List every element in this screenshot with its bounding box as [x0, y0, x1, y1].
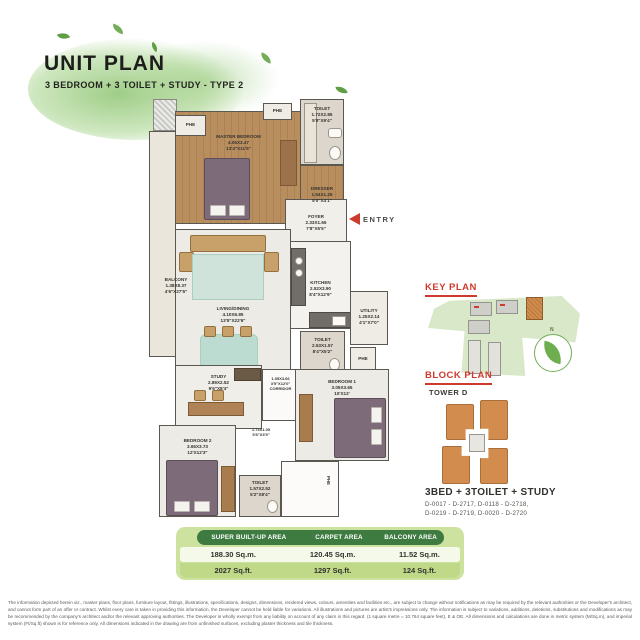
room-study: STUDY 2.89X2.52 9'6"X8'4": [175, 365, 262, 429]
stove-icon: [295, 269, 303, 277]
floor-plan: BALCONY 1.38X8.37 4'6"X27'5" MASTER BEDR…: [145, 95, 390, 520]
dining-chair-icon: [222, 326, 234, 337]
room-label-passage: 1.73X1.05 5'8"X3'5": [237, 427, 285, 437]
room-label-corridor: 1.05X3.66 3'5"X12'0" CORRIDOR: [263, 376, 298, 392]
room-label-study: STUDY 2.89X2.52 9'6"X8'4": [176, 374, 261, 392]
key-plan-tower: [468, 340, 481, 374]
service-shaft: [153, 99, 177, 131]
room-label-toilet2: TOILET 1.57X2.52 5'2"X8'4": [240, 480, 280, 498]
room-label-bedroom2: BEDROOM 2 3.65X3.73 12'X12'3": [160, 438, 235, 456]
area-row-sqft: 2027 Sq.ft. 1297 Sq.ft. 124 Sq.ft.: [180, 563, 460, 578]
leaf-icon: [335, 85, 347, 95]
room-bedroom2: BEDROOM 2 3.65X3.73 12'X12'3": [159, 425, 236, 517]
wardrobe-icon: [299, 394, 313, 442]
bed-icon: [204, 158, 250, 220]
page-subtitle: 3 BEDROOM + 3 TOILET + STUDY - TYPE 2: [45, 80, 244, 90]
sink-icon: [332, 316, 346, 326]
bed-icon: [166, 460, 218, 516]
exit-lobby: PHE: [281, 461, 339, 517]
value-super-builtup-sqm: 188.30 Sq.m.: [180, 550, 286, 559]
header-balcony: BALCONY AREA: [377, 534, 444, 541]
header-super-builtup: SUPER BUILT-UP AREA: [197, 534, 301, 541]
room-corridor: 1.05X3.66 3'5"X12'0" CORRIDOR: [262, 369, 299, 421]
room-toilet2: TOILET 1.57X2.52 5'2"X8'4": [239, 475, 281, 517]
washbasin-icon: [328, 128, 342, 138]
unit-plan-page: UNIT PLAN 3 BEDROOM + 3 TOILET + STUDY -…: [0, 0, 640, 640]
room-label-balcony: BALCONY 1.38X8.37 4'6"X27'5": [147, 277, 205, 295]
key-plan-title: KEY PLAN: [425, 282, 477, 297]
block-unit: [480, 448, 508, 484]
value-carpet-sqft: 1297 Sq.ft.: [286, 566, 378, 575]
room-balcony: [149, 131, 176, 357]
key-plan-tower: [468, 320, 490, 334]
unit-numbers-line1: D-0017 - D-2717, D-0118 - D-2718,: [425, 501, 528, 508]
room-kitchen: KITCHEN 2.52X3.90 8'4"X12'9": [290, 241, 351, 329]
key-plan-tower: [496, 300, 518, 314]
pillow-icon: [371, 429, 382, 445]
area-table: SUPER BUILT-UP AREA CARPET AREA BALCONY …: [176, 527, 464, 580]
sofa-icon: [190, 235, 266, 252]
room-label-toilet-common: TOILET 2.53X1.57 8'4"X5'2": [301, 337, 344, 355]
wardrobe-icon: [221, 466, 235, 512]
phe-label: PHE: [326, 476, 331, 485]
disclaimer-text: The information depicted herein viz., ma…: [8, 600, 632, 628]
header-carpet: CARPET AREA: [301, 534, 378, 541]
leaf-icon: [149, 42, 160, 52]
entry-arrow-icon: [349, 213, 360, 225]
phe-label: PHE: [264, 108, 291, 114]
value-super-builtup-sqft: 2027 Sq.ft.: [180, 566, 286, 575]
room-label-foyer: FOYER 2.33X1.65 7'8"X5'5": [286, 214, 346, 232]
pillow-icon: [194, 501, 210, 512]
room-label-master-bedroom: MASTER BEDROOM 4.05X3.47 13'4"X11'5": [176, 134, 301, 152]
wc-icon: [329, 146, 341, 160]
page-title: UNIT PLAN: [44, 52, 165, 76]
bed-icon: [334, 398, 386, 458]
leaf-icon: [259, 52, 273, 64]
phe-box: PHE: [263, 103, 292, 120]
phe-label: PHE: [176, 122, 205, 128]
north-compass-icon: N: [534, 334, 572, 372]
room-label-living-dining: LIVING/DINING 4.10X6.85 13'5"X22'6": [176, 306, 290, 324]
value-carpet-sqm: 120.45 Sq.m.: [286, 550, 378, 559]
room-bedroom1: BEDROOM 1 3.05X3.65 10'X12': [295, 369, 389, 461]
compass-north-label: N: [550, 327, 554, 333]
room-label-utility: UTILITY 1.25X2.14 4'1"X7'0": [351, 308, 387, 326]
key-plan-marker: [474, 306, 479, 308]
room-utility: UTILITY 1.25X2.14 4'1"X7'0": [350, 291, 388, 345]
block-unit: [442, 446, 470, 484]
pillow-icon: [210, 205, 226, 216]
kitchen-counter-icon: [309, 312, 351, 328]
room-foyer: FOYER 2.33X1.65 7'8"X5'5": [285, 199, 347, 247]
room-label-toilet-master: TOILET 1.72X2.85 5'8"X9'4": [301, 106, 343, 124]
entry-label: ENTRY: [363, 215, 396, 224]
stove-icon: [295, 257, 303, 265]
pillow-icon: [371, 407, 382, 423]
tower-label: TOWER D: [429, 388, 468, 397]
block-core: [469, 434, 485, 452]
key-plan-marker: [500, 304, 505, 306]
leaf-icon: [111, 24, 125, 35]
pillow-icon: [229, 205, 245, 216]
dining-chair-icon: [240, 326, 252, 337]
compass-leaf-icon: [542, 341, 564, 364]
phe-label: PHE: [351, 356, 375, 362]
key-plan-tower: [470, 302, 492, 316]
leaf-icon: [57, 30, 70, 42]
value-balcony-sqm: 11.52 Sq.m.: [379, 550, 460, 559]
unit-type-label: 3BED + 3TOILET + STUDY: [425, 487, 556, 498]
area-table-header: SUPER BUILT-UP AREA CARPET AREA BALCONY …: [197, 530, 444, 545]
area-row-sqm: 188.30 Sq.m. 120.45 Sq.m. 11.52 Sq.m.: [180, 547, 460, 562]
pillow-icon: [174, 501, 190, 512]
phe-box: PHE: [175, 115, 206, 136]
room-toilet-master: TOILET 1.72X2.85 5'8"X9'4": [300, 99, 344, 165]
block-plan-figure: [438, 400, 516, 484]
unit-numbers-line2: D-0219 - D-2719, D-0020 - D-2720: [425, 510, 527, 517]
room-label-dresser: DRESSER 1.54X1.25 5'0"X4'1": [301, 186, 343, 204]
value-balcony-sqft: 124 Sq.ft.: [379, 566, 460, 575]
room-label-kitchen: KITCHEN 2.52X3.90 8'4"X12'9": [291, 280, 350, 298]
desk-icon: [188, 402, 244, 416]
armchair-icon: [264, 252, 279, 272]
dining-chair-icon: [204, 326, 216, 337]
wc-icon: [267, 500, 278, 513]
key-plan-tower-d-highlight: [526, 297, 543, 320]
room-label-bedroom1: BEDROOM 1 3.05X3.65 10'X12': [296, 379, 388, 397]
block-plan-title: BLOCK PLAN: [425, 370, 492, 385]
